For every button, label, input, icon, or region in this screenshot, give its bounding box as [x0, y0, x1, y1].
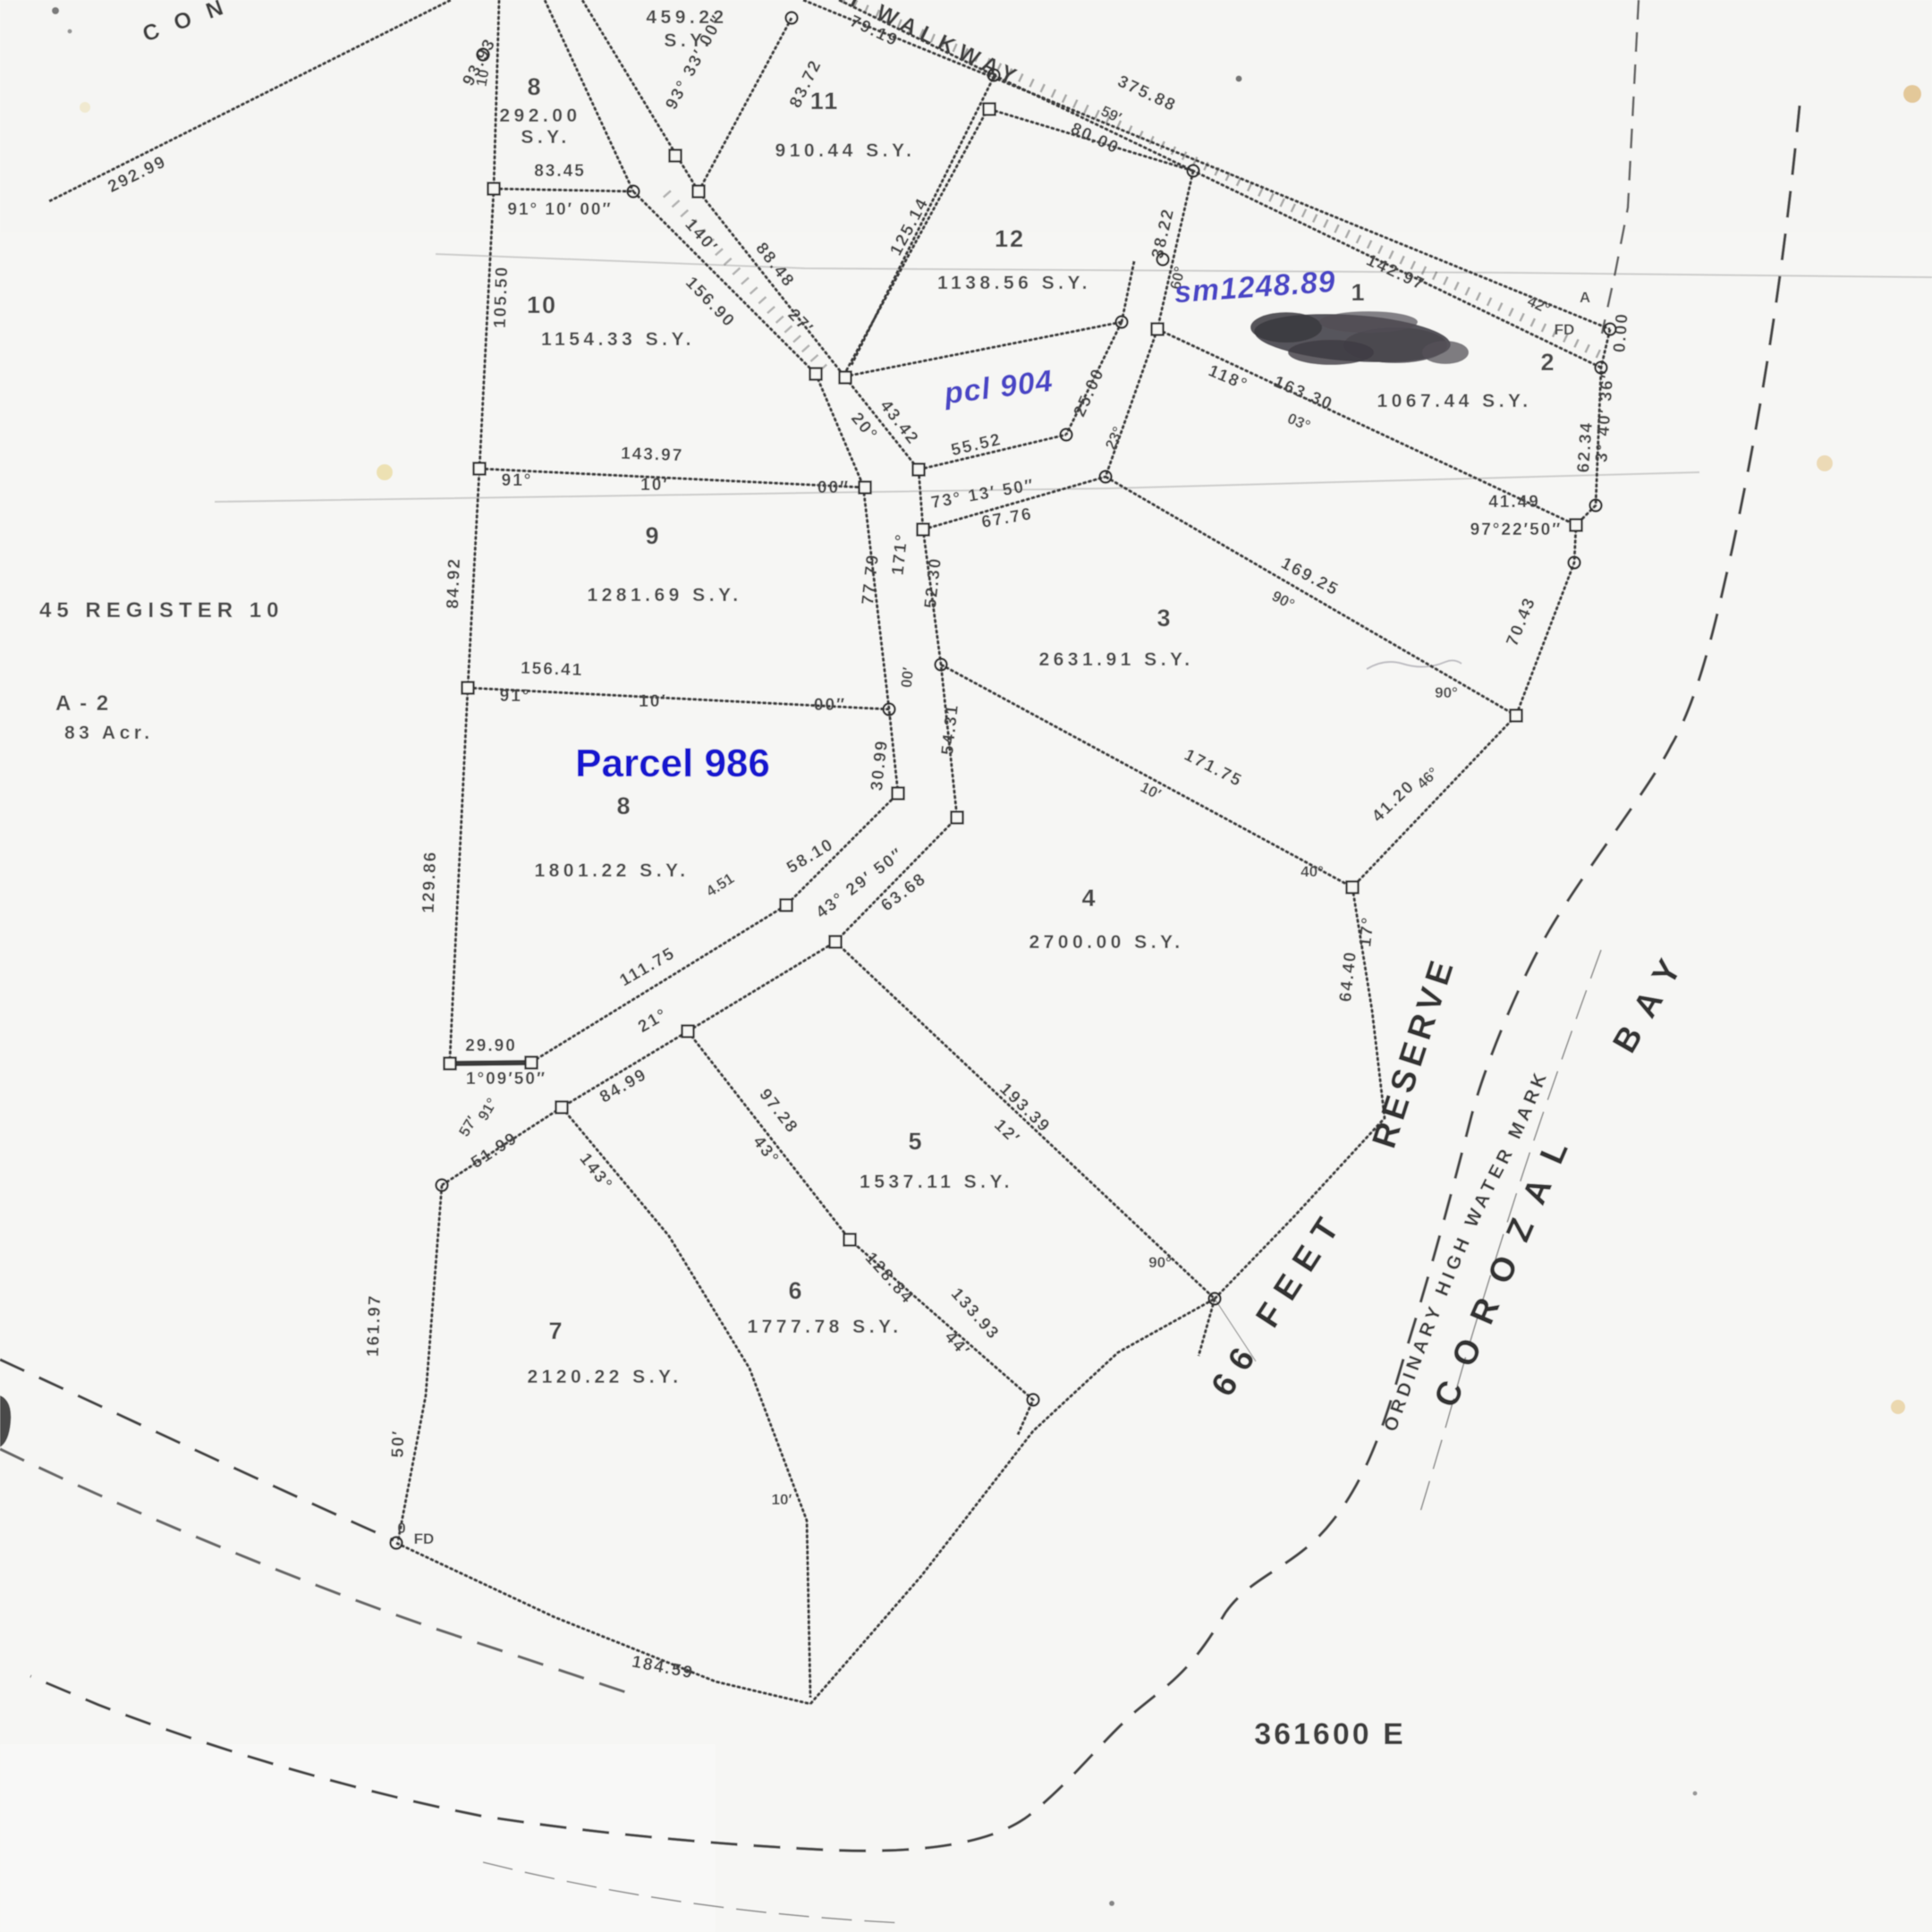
svg-text:S.Y.: S.Y. [664, 30, 713, 51]
svg-text:91°: 91° [500, 687, 531, 706]
svg-text:90°: 90° [1148, 1254, 1172, 1271]
svg-text:1154.33 S.Y.: 1154.33 S.Y. [541, 329, 695, 350]
svg-text:2700.00 S.Y.: 2700.00 S.Y. [1029, 932, 1183, 953]
svg-text:143.97: 143.97 [621, 445, 684, 465]
svg-text:2631.91 S.Y.: 2631.91 S.Y. [1038, 649, 1193, 670]
svg-text:1537.11 S.Y.: 1537.11 S.Y. [860, 1172, 1013, 1192]
svg-text:1: 1 [1351, 279, 1366, 306]
svg-text:3: 3 [1157, 605, 1172, 631]
svg-text:0: 0 [397, 1520, 405, 1537]
svg-text:29.90: 29.90 [465, 1037, 517, 1055]
svg-text:7: 7 [548, 1318, 563, 1344]
svg-text:129.86: 129.86 [419, 850, 440, 913]
svg-text:910.44 S.Y.: 910.44 S.Y. [775, 140, 916, 161]
svg-text:00″: 00″ [818, 479, 850, 497]
svg-text:84.92: 84.92 [444, 557, 464, 609]
svg-text:1138.56 S.Y.: 1138.56 S.Y. [937, 273, 1091, 293]
svg-text:459.22: 459.22 [646, 7, 727, 28]
svg-text:91° 10′ 00″: 91° 10′ 00″ [507, 200, 612, 219]
svg-text:1777.78 S.Y.: 1777.78 S.Y. [747, 1317, 902, 1337]
svg-text:97°22′50″: 97°22′50″ [1470, 521, 1563, 539]
svg-text:5: 5 [908, 1128, 923, 1155]
svg-text:10′: 10′ [772, 1491, 792, 1508]
svg-text:45 REGISTER 10: 45 REGISTER 10 [39, 598, 284, 623]
svg-text:4: 4 [1081, 885, 1097, 911]
svg-text:156.41: 156.41 [521, 659, 584, 680]
svg-text:62.34: 62.34 [1574, 420, 1597, 473]
svg-text:6: 6 [788, 1277, 803, 1304]
svg-text:292.00: 292.00 [499, 106, 580, 126]
svg-text:A: A [1580, 289, 1590, 306]
svg-text:8: 8 [527, 73, 542, 100]
svg-text:FD: FD [1555, 321, 1575, 338]
svg-text:361600 E: 361600 E [1254, 1717, 1406, 1751]
svg-text:10′: 10′ [639, 692, 667, 711]
svg-text:8: 8 [616, 792, 631, 819]
svg-text:2120.22 S.Y.: 2120.22 S.Y. [527, 1367, 682, 1387]
svg-text:12: 12 [995, 225, 1025, 252]
svg-text:17°: 17° [1356, 915, 1378, 948]
svg-text:00″: 00″ [814, 696, 846, 715]
svg-text:10′: 10′ [640, 476, 669, 495]
svg-text:83 Acr.: 83 Acr. [64, 723, 154, 743]
svg-text:S.Y.: S.Y. [521, 127, 570, 148]
svg-text:A - 2: A - 2 [55, 691, 110, 716]
svg-text:10: 10 [527, 292, 557, 318]
svg-text:1°09′50″: 1°09′50″ [466, 1070, 547, 1089]
svg-text:00′: 00′ [898, 666, 917, 689]
svg-text:11: 11 [810, 88, 840, 114]
svg-text:1067.44 S.Y.: 1067.44 S.Y. [1377, 391, 1531, 411]
svg-text:41.49: 41.49 [1488, 493, 1540, 512]
svg-text:1801.22 S.Y.: 1801.22 S.Y. [534, 860, 689, 881]
svg-text:9: 9 [645, 522, 660, 549]
svg-text:83.45: 83.45 [534, 162, 586, 181]
svg-text:1281.69 S.Y.: 1281.69 S.Y. [587, 585, 741, 606]
svg-text:161.97: 161.97 [364, 1293, 385, 1357]
svg-text:91°: 91° [502, 471, 533, 490]
svg-text:105.50: 105.50 [491, 265, 512, 328]
svg-text:40°: 40° [1301, 863, 1324, 880]
svg-text:Parcel 986: Parcel 986 [575, 741, 770, 785]
svg-text:90°: 90° [1435, 684, 1458, 701]
svg-text:2: 2 [1540, 349, 1555, 376]
svg-text:FD: FD [414, 1530, 435, 1547]
svg-text:50′: 50′ [388, 1429, 408, 1458]
